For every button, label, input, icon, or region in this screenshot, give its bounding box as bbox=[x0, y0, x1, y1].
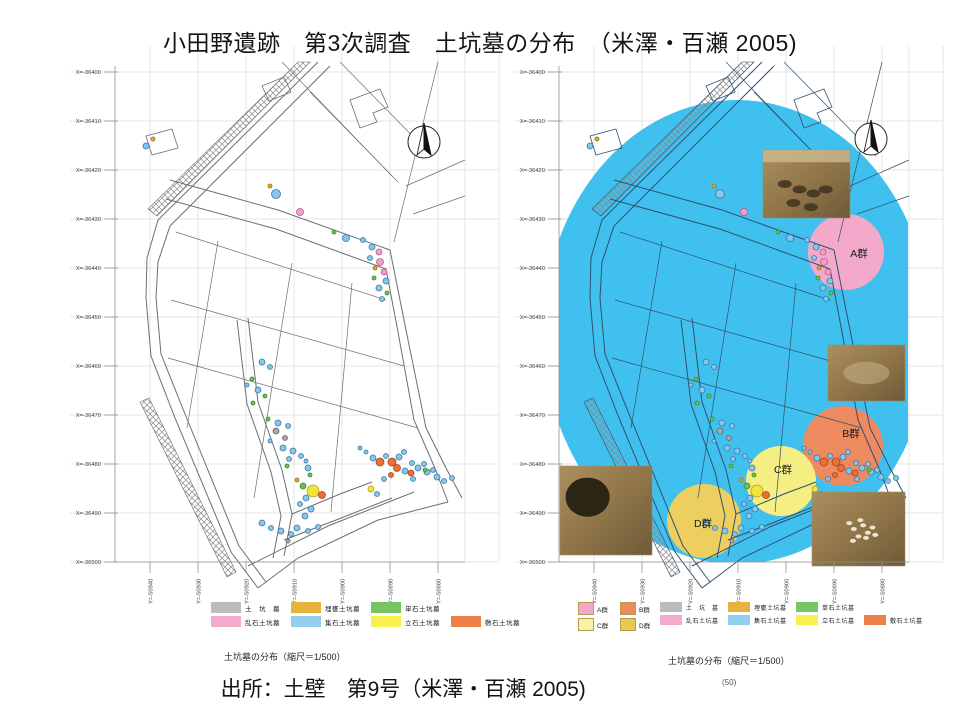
legend-row: 乱石土坑墓 集石土坑墓 立石土坑墓 敷石土坑墓 bbox=[211, 616, 525, 627]
group-circle-label: D群 bbox=[694, 517, 713, 530]
x-axis-tick-label: X=-36450 bbox=[76, 315, 101, 321]
legend-label: 土 坑 墓 bbox=[686, 603, 719, 612]
group-swatch bbox=[620, 602, 636, 615]
legend-label: 立石土坑墓 bbox=[405, 617, 440, 627]
slide-title: 小田野遺跡 第3次調査 土坑墓の分布 （米澤・百瀬 2005) bbox=[0, 24, 960, 58]
legend-item: 立石土坑墓 bbox=[371, 616, 445, 627]
group-legend-row: C群 D群 bbox=[578, 618, 656, 631]
legend-label: 埋甕土坑墓 bbox=[325, 603, 360, 613]
group-legend-item: B群 bbox=[620, 602, 656, 615]
excavation-photo-top bbox=[763, 150, 850, 218]
legend-item: 単石土坑墓 bbox=[371, 602, 445, 613]
y-axis-tick-label: Y=-50930 bbox=[641, 579, 647, 604]
legend-label: 単石土坑墓 bbox=[405, 603, 440, 613]
x-axis-tick-label: X=-36440 bbox=[76, 266, 101, 272]
y-axis-tick-label: Y=-50880 bbox=[881, 579, 887, 604]
x-axis-tick-label: X=-36430 bbox=[520, 217, 545, 223]
group-legend-row: A群 B群 bbox=[578, 602, 656, 615]
x-axis-tick-label: X=-36490 bbox=[520, 511, 545, 517]
legend-left: 土 坑 墓 埋甕土坑墓 単石土坑墓 乱石土坑墓 集石土坑墓 立石土坑墓 bbox=[211, 602, 525, 627]
y-axis-tick-label: Y=-50900 bbox=[341, 579, 347, 604]
legend-swatch bbox=[291, 616, 321, 627]
x-axis-tick-label: X=-36410 bbox=[520, 119, 545, 125]
x-axis-tick-label: X=-36490 bbox=[76, 511, 101, 517]
legend-swatch bbox=[728, 602, 750, 612]
legend-label: 乱石土坑墓 bbox=[245, 617, 280, 627]
y-axis-tick-label: Y=-50900 bbox=[785, 579, 791, 604]
x-axis-tick-label: X=-36440 bbox=[520, 266, 545, 272]
legend-swatch bbox=[211, 602, 241, 613]
legend-swatch bbox=[371, 602, 401, 613]
x-axis-tick-label: X=-36470 bbox=[520, 413, 545, 419]
legend-swatch bbox=[864, 615, 886, 625]
y-axis-tick-label: Y=-50940 bbox=[149, 579, 155, 604]
excavation-photo-bottom-right bbox=[812, 492, 905, 566]
legend-item: 集石土坑墓 bbox=[291, 616, 365, 627]
right-site-map: A群B群C群D群X=-36400X=-36410X=-36420X=-36430… bbox=[514, 46, 943, 604]
x-axis-tick-label: X=-36410 bbox=[76, 119, 101, 125]
legend-swatch bbox=[451, 616, 481, 627]
group-legend-item: C群 bbox=[578, 618, 614, 631]
legend-swatch bbox=[211, 616, 241, 627]
y-axis-tick-label: Y=-50890 bbox=[389, 579, 395, 604]
x-axis-tick-label: X=-36400 bbox=[76, 70, 101, 76]
y-axis-tick-label: Y=-50920 bbox=[245, 579, 251, 604]
group-label: A群 bbox=[597, 604, 608, 614]
left-map-caption: 土坑墓の分布（縮尺＝1/500） bbox=[224, 650, 346, 663]
legend-item: 集石土坑墓 bbox=[728, 615, 790, 625]
group-legend: A群 B群 C群 D群 bbox=[578, 602, 656, 631]
excavation-photo-middle bbox=[828, 345, 905, 401]
y-axis-tick-label: Y=-50920 bbox=[689, 579, 695, 604]
legend-swatch bbox=[371, 616, 401, 627]
x-axis-tick-label: X=-36420 bbox=[520, 168, 545, 174]
y-axis-tick-label: Y=-50880 bbox=[437, 579, 443, 604]
y-axis-tick-label: Y=-50910 bbox=[737, 579, 743, 604]
legend-swatch bbox=[796, 602, 818, 612]
group-label: D群 bbox=[639, 620, 650, 630]
legend-item: 埋甕土坑墓 bbox=[291, 602, 365, 613]
x-axis-tick-label: X=-36460 bbox=[76, 364, 101, 370]
excavation-photo-bottom-left bbox=[560, 466, 652, 555]
legend-item: 土 坑 墓 bbox=[211, 602, 285, 613]
y-axis-tick-label: Y=-50890 bbox=[833, 579, 839, 604]
x-axis-tick-label: X=-36500 bbox=[76, 560, 101, 566]
x-axis-tick-label: X=-36430 bbox=[76, 217, 101, 223]
y-axis-tick-label: Y=-50930 bbox=[197, 579, 203, 604]
legend-item: 敷石土坑墓 bbox=[451, 616, 525, 627]
group-legend-item: D群 bbox=[620, 618, 656, 631]
group-swatch bbox=[578, 618, 594, 631]
legend-label: 土 坑 墓 bbox=[245, 603, 280, 613]
group-swatch bbox=[578, 602, 594, 615]
legend-label: 集石土坑墓 bbox=[325, 617, 360, 627]
legend-row: 土 坑 墓 埋甕土坑墓 単石土坑墓 bbox=[660, 602, 926, 612]
legend-row: 乱石土坑墓 集石土坑墓 立石土坑墓 敷石土坑墓 bbox=[660, 615, 926, 625]
legend-item: 埋甕土坑墓 bbox=[728, 602, 790, 612]
group-circle-label: A群 bbox=[850, 247, 868, 260]
x-axis-tick-label: X=-36400 bbox=[520, 70, 545, 76]
legend-item: 乱石土坑墓 bbox=[211, 616, 285, 627]
x-axis-tick-label: X=-36460 bbox=[520, 364, 545, 370]
legend-label: 立石土坑墓 bbox=[822, 616, 855, 625]
group-swatch bbox=[620, 618, 636, 631]
legend-item: 単石土坑墓 bbox=[796, 602, 858, 612]
legend-label: 集石土坑墓 bbox=[754, 616, 787, 625]
legend-right: 土 坑 墓 埋甕土坑墓 単石土坑墓 乱石土坑墓 集石土坑墓 立石土坑墓 bbox=[660, 602, 926, 625]
x-axis-tick-label: X=-36470 bbox=[76, 413, 101, 419]
x-axis-tick-label: X=-36480 bbox=[520, 462, 545, 468]
x-axis-tick-label: X=-36500 bbox=[520, 560, 545, 566]
x-axis-tick-label: X=-36420 bbox=[76, 168, 101, 174]
legend-item: 乱石土坑墓 bbox=[660, 615, 722, 625]
legend-item: 立石土坑墓 bbox=[796, 615, 858, 625]
x-axis-tick-label: X=-36450 bbox=[520, 315, 545, 321]
legend-item: 土 坑 墓 bbox=[660, 602, 722, 612]
legend-label: 敷石土坑墓 bbox=[485, 617, 520, 627]
survey-grid bbox=[70, 46, 499, 562]
legend-row: 土 坑 墓 埋甕土坑墓 単石土坑墓 bbox=[211, 602, 525, 613]
group-label: C群 bbox=[597, 620, 608, 630]
legend-swatch bbox=[728, 615, 750, 625]
group-legend-item: A群 bbox=[578, 602, 614, 615]
legend-label: 単石土坑墓 bbox=[822, 603, 855, 612]
y-axis-tick-label: Y=-50940 bbox=[593, 579, 599, 604]
north-arrow-icon bbox=[408, 123, 440, 158]
legend-item: 敷石土坑墓 bbox=[864, 615, 926, 625]
legend-swatch bbox=[796, 615, 818, 625]
legend-swatch bbox=[660, 615, 682, 625]
legend-label: 乱石土坑墓 bbox=[686, 616, 719, 625]
group-circle-label: B群 bbox=[842, 427, 860, 440]
slide: X=-36400X=-36410X=-36420X=-36430X=-36440… bbox=[0, 0, 960, 720]
legend-swatch bbox=[660, 602, 682, 612]
right-map-caption: 土坑墓の分布（縮尺＝1/500） bbox=[668, 654, 790, 667]
legend-label: 埋甕土坑墓 bbox=[754, 603, 787, 612]
group-label: B群 bbox=[639, 604, 650, 614]
y-axis-tick-label: Y=-50910 bbox=[293, 579, 299, 604]
legend-label: 敷石土坑墓 bbox=[890, 616, 923, 625]
group-circle-label: C群 bbox=[774, 463, 793, 476]
x-axis-tick-label: X=-36480 bbox=[76, 462, 101, 468]
source-citation: 出所：土壁 第9号（米澤・百瀬 2005) bbox=[0, 673, 806, 703]
legend-swatch bbox=[291, 602, 321, 613]
left-site-map: X=-36400X=-36410X=-36420X=-36430X=-36440… bbox=[70, 46, 499, 604]
